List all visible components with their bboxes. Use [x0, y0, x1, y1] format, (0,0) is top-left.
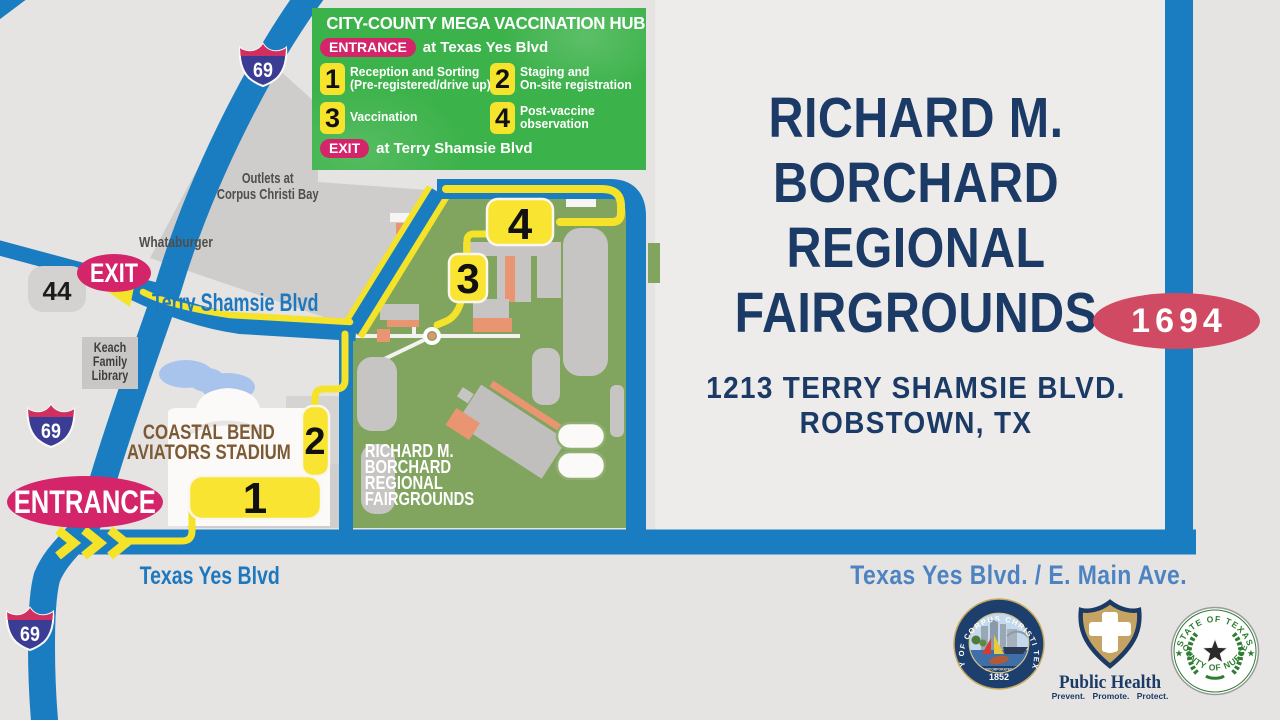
outlets-label-line2: Corpus Christi Bay [217, 185, 319, 202]
texas-yes-label: Texas Yes Blvd [140, 562, 280, 590]
title-line-3: REGIONAL [700, 216, 1132, 281]
fairground-green-sliver [648, 243, 660, 283]
step-3-line1: Vaccination [350, 110, 417, 124]
svg-text:FAIRGROUNDS: FAIRGROUNDS [365, 488, 474, 509]
info-box-title: CITY-COUNTY MEGA VACCINATION HUB [326, 13, 631, 34]
interstate-number: 69 [253, 59, 273, 83]
interstate-number: 69 [20, 623, 40, 647]
entrance-pill: ENTRANCE [320, 38, 416, 57]
station-3-number: 3 [456, 255, 479, 302]
title-line-1: RICHARD M. [700, 86, 1132, 151]
page-title: RICHARD M. BORCHARD REGIONAL FAIRGROUNDS [700, 86, 1132, 346]
step-2: 2 Staging and On-site registration [490, 63, 638, 95]
corpus-seal-incorporated: INCORPORATED [985, 668, 1013, 672]
step-1-line1: Reception and Sorting [350, 65, 479, 79]
corpus-seal-year: 1852 [989, 672, 1009, 682]
hub-steps: 1 Reception and Sorting (Pre-registered/… [320, 63, 638, 134]
whataburger-label: Whataburger [139, 234, 214, 251]
svg-text:★: ★ [1247, 649, 1255, 658]
step-3: 3 Vaccination [320, 102, 490, 134]
roundabout-center [429, 333, 436, 340]
address-line-2: ROBSTOWN, TX [687, 405, 1144, 440]
step-4-line1: Post-vaccine [520, 104, 595, 118]
public-health-logo: Public Health Prevent. Promote. Protect. [1052, 598, 1172, 706]
step-4: 4 Post-vaccine observation [490, 102, 638, 134]
public-health-name: Public Health [1059, 672, 1161, 693]
exit-badge: EXIT [77, 254, 151, 292]
step-2-line2: On-site registration [520, 78, 632, 92]
public-health-tagline: Prevent. Promote. Protect. [1052, 691, 1168, 701]
station-1-number: 1 [243, 474, 267, 523]
svg-text:Library: Library [92, 368, 129, 383]
step-4-number: 4 [490, 102, 515, 134]
nueces-county-seal: ★ ★ STATE OF TEXAS COUNTY OF NUECES [1170, 606, 1260, 696]
exit-badge-label: EXIT [90, 259, 138, 289]
address-line-1: 1213 TERRY SHAMSIE BLVD. [687, 370, 1144, 405]
entrance-badge-label: ENTRANCE [14, 485, 156, 520]
interstate-number: 69 [41, 420, 61, 444]
fm-1694-route-marker: 1694 [1093, 293, 1260, 349]
title-line-2: BORCHARD [700, 151, 1132, 216]
public-health-shield-icon [1081, 602, 1140, 666]
exit-pill: EXIT [320, 139, 369, 158]
stadium-label-line2: AVIATORS STADIUM [127, 441, 291, 464]
entrance-street-text: at Texas Yes Blvd [423, 39, 548, 56]
step-1: 1 Reception and Sorting (Pre-registered/… [320, 63, 490, 95]
vaccination-hub-info-box: CITY-COUNTY MEGA VACCINATION HUB ENTRANC… [312, 8, 646, 170]
step-1-line2: (Pre-registered/drive up) [350, 78, 491, 92]
station-2-number: 2 [304, 421, 325, 463]
station-4-number: 4 [508, 200, 533, 249]
texas-yes-e-main-label: Texas Yes Blvd. / E. Main Ave. [739, 560, 1187, 591]
step-2-number: 2 [490, 63, 515, 95]
step-1-number: 1 [320, 63, 345, 95]
step-4-line2: observation [520, 117, 589, 131]
entrance-badge: ENTRANCE [7, 476, 163, 528]
step-2-line1: Staging and [520, 65, 589, 79]
exit-street-text: at Terry Shamsie Blvd [376, 140, 532, 157]
outlets-label-line1: Outlets at [242, 169, 294, 186]
highway-44-number: 44 [43, 276, 72, 306]
corpus-christi-seal: CITY OF CORPUS CHRISTI TEXAS INCORPORATE… [953, 598, 1045, 695]
flyer-root: 1 2 3 4 44 69 69 69 EXIT ENTRANCE Keach … [0, 0, 1280, 720]
address: 1213 TERRY SHAMSIE BLVD. ROBSTOWN, TX [687, 370, 1144, 440]
keach-library-label: Keach Family Library [82, 337, 138, 389]
terry-shamsie-label: Terry Shamsie Blvd [152, 288, 319, 317]
title-line-4: FAIRGROUNDS [700, 281, 1132, 346]
step-3-number: 3 [320, 102, 345, 134]
